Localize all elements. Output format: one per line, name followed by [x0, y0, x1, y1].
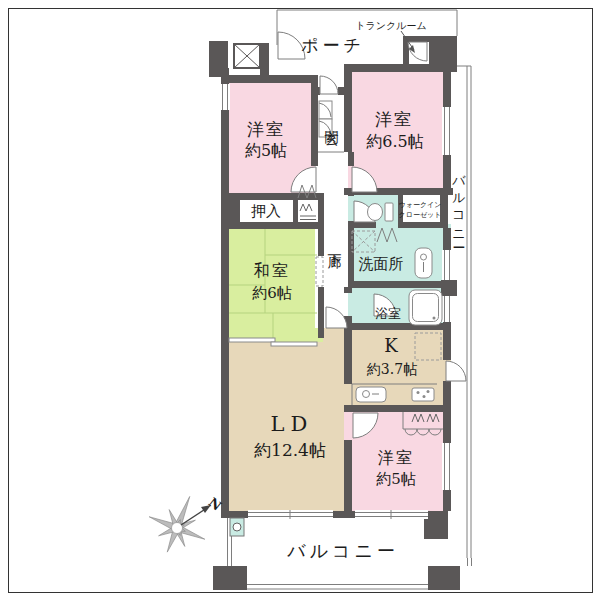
label-western-br-size: 約5帖: [376, 472, 416, 487]
window-sliding: [248, 510, 333, 519]
vanity-sink-icon: [415, 248, 432, 278]
label-porch: ポーチ: [301, 37, 365, 54]
label-bathroom: 浴室: [375, 307, 401, 320]
label-living-size: 約12.4帖: [254, 442, 326, 459]
entrance-door-swing: [320, 76, 338, 94]
label-kitchen-size: 約3.7帖: [367, 362, 417, 376]
shoe-cabinet-icon: [319, 101, 332, 137]
kitchen-balcony-door-swing: [446, 361, 466, 381]
label-balcony-bottom: バルコニー: [287, 542, 399, 560]
label-washroom: 洗面所: [359, 257, 404, 272]
label-western-tl-name: 洋室: [247, 121, 285, 138]
window-sliding: [355, 510, 428, 519]
label-kitchen-name: K: [384, 337, 397, 355]
fusuma-sliding-door: [315, 256, 324, 287]
window: [442, 296, 452, 322]
toilet-icon: [368, 203, 394, 221]
label-trunk-room: トランクルーム: [355, 21, 426, 31]
pillar-bottom-left: [213, 566, 247, 590]
label-living-name: LD: [271, 414, 314, 435]
window: [442, 443, 452, 490]
label-western-tr-name: 洋室: [375, 111, 413, 128]
stove-icon: [412, 388, 434, 401]
kitchen-sink-icon: [356, 387, 386, 402]
shaft-icon: [234, 44, 260, 68]
label-western-tl-size: 約5帖: [245, 143, 287, 159]
bathtub-icon: [409, 290, 442, 325]
label-walkin-1: ウォークイン: [399, 202, 442, 209]
label-western-tr-size: 約6.5帖: [366, 134, 423, 150]
window: [442, 107, 452, 155]
window: [220, 84, 230, 110]
floor-plan: ポーチ トランクルーム 洋室 約5帖 洋室 約6.5帖 玄関 廊下 押入 和室 …: [0, 0, 600, 600]
pillar-top-right: [429, 36, 457, 72]
pillar-bottom-right: [428, 566, 460, 590]
meter-box-icon: [230, 518, 244, 536]
label-japanese-name: 和室: [254, 263, 290, 279]
label-japanese-size: 約6帖: [252, 286, 292, 301]
label-western-br-name: 洋室: [378, 450, 414, 466]
label-oshiire: 押入: [251, 204, 281, 219]
window: [442, 250, 452, 280]
label-walkin-2: クローゼット: [399, 212, 442, 219]
label-balcony-right: バルコニー: [453, 165, 466, 244]
compass-icon: [148, 495, 211, 553]
floorplan-drawing: [0, 0, 600, 600]
